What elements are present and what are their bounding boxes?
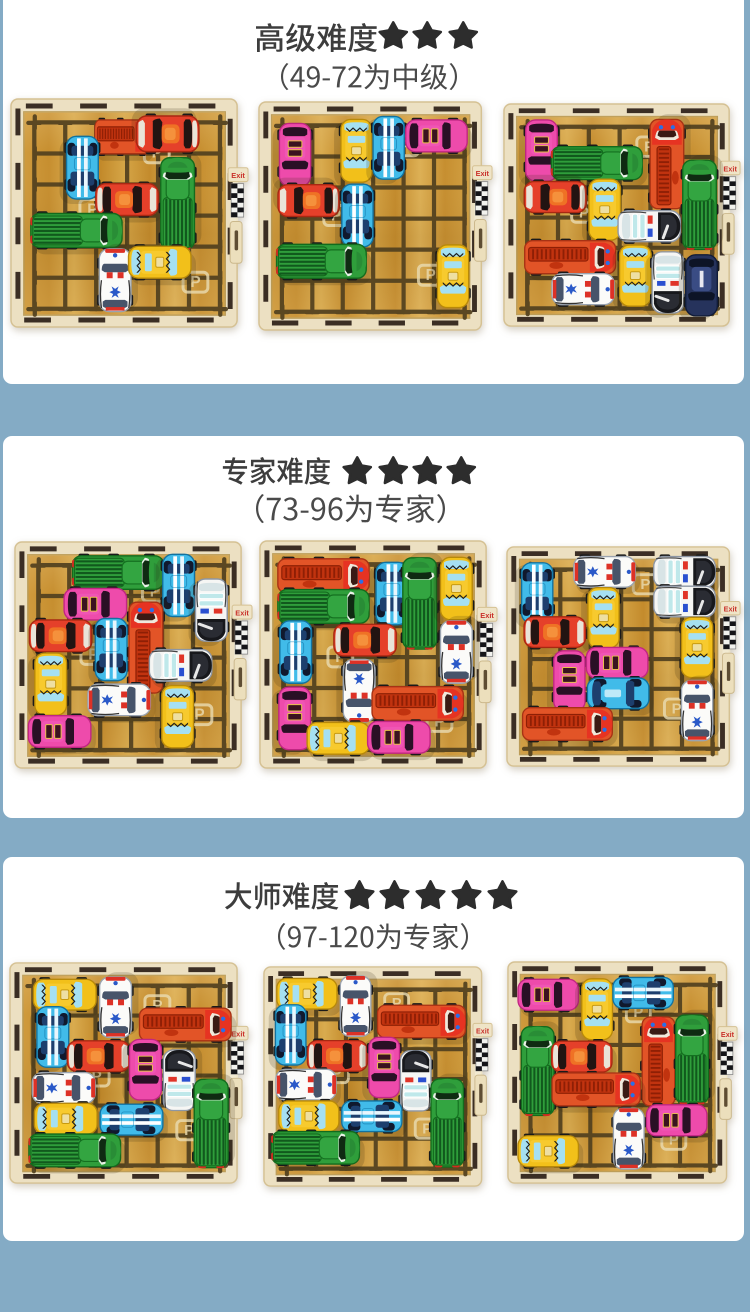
- svg-text:Exit: Exit: [476, 1027, 490, 1035]
- svg-text:Exit: Exit: [724, 605, 738, 614]
- svg-text:Exit: Exit: [480, 611, 494, 620]
- svg-text:P: P: [194, 707, 204, 724]
- svg-text:P: P: [672, 701, 682, 718]
- svg-text:Exit: Exit: [476, 169, 490, 178]
- svg-text:Exit: Exit: [721, 1030, 735, 1039]
- svg-text:Exit: Exit: [723, 164, 737, 173]
- svg-text:P: P: [640, 576, 650, 593]
- svg-text:Exit: Exit: [235, 609, 249, 618]
- svg-text:Exit: Exit: [231, 171, 245, 180]
